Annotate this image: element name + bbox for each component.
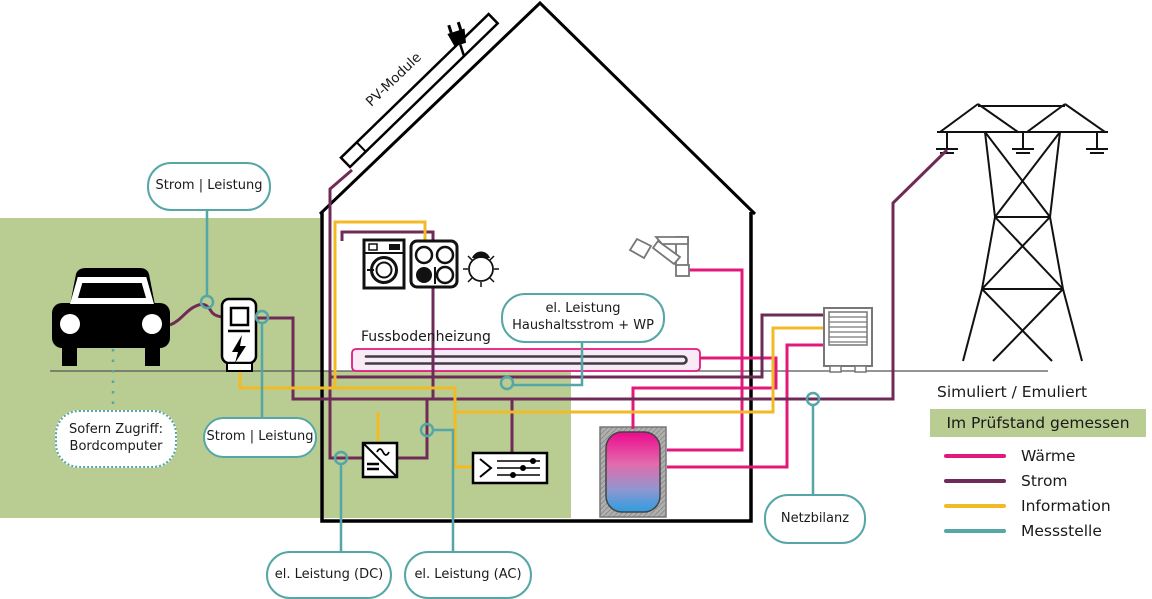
bubble-text-line2: Haushaltsstrom + WP xyxy=(512,318,654,335)
legend-row-messstelle: Messstelle xyxy=(944,518,1111,543)
power-pylon-icon xyxy=(936,104,1108,361)
legend-measured-badge: Im Prüfstand gemessen xyxy=(930,409,1146,437)
inverter-icon xyxy=(363,443,397,477)
floor-heating xyxy=(352,349,700,371)
bubble-text-line2: Bordcomputer xyxy=(70,439,163,456)
bubble-text: el. Leistung (DC) xyxy=(275,567,383,584)
washing-machine-icon xyxy=(364,240,404,288)
bubble-el-leistung-ac: el. Leistung (AC) xyxy=(404,551,532,599)
legend-swatch-strom xyxy=(944,479,1006,483)
measurement-loop-household xyxy=(501,377,513,389)
bubble-netzbilanz: Netzbilanz xyxy=(764,494,866,544)
electric-car-icon xyxy=(52,268,170,366)
wire-power-charging-cable xyxy=(170,304,225,325)
floor-heating-label: Fussbodenheizung xyxy=(361,329,491,345)
legend-swatch-information xyxy=(944,504,1006,508)
bubble-el-leistung-dc: el. Leistung (DC) xyxy=(266,551,392,599)
bubble-text-line1: Sofern Zugriff: xyxy=(69,422,163,439)
pylon-insulators xyxy=(936,132,1108,153)
legend-row-strom: Strom xyxy=(944,468,1111,493)
legend-label-messstelle: Messstelle xyxy=(1021,522,1102,540)
wire-power-inverter-ac xyxy=(398,399,427,458)
pv-panel xyxy=(341,14,498,167)
stove-icon xyxy=(411,241,457,287)
legend-simulated-label: Simuliert / Emuliert xyxy=(937,383,1087,401)
wire-mess-ac xyxy=(433,430,453,551)
legend-label-information: Information xyxy=(1021,497,1111,515)
heat-pump-icon xyxy=(824,308,872,372)
charging-station-icon xyxy=(222,299,256,371)
energy-system-diagram: PV-Module Fussbodenheizung Strom | Leist… xyxy=(0,0,1152,599)
legend-row-information: Information xyxy=(944,493,1111,518)
bubble-text: Netzbilanz xyxy=(781,511,849,528)
bubble-strom-leistung-top: Strom | Leistung xyxy=(147,162,271,211)
bubble-haushaltsstrom: el. Leistung Haushaltsstrom + WP xyxy=(501,293,665,343)
bubble-text-line1: el. Leistung xyxy=(545,301,620,318)
energy-manager-icon xyxy=(473,453,547,483)
legend-swatch-messstelle xyxy=(944,529,1006,533)
legend-label-strom: Strom xyxy=(1021,472,1068,490)
legend-label-waerme: Wärme xyxy=(1021,447,1076,465)
legend: Wärme Strom Information Messstelle xyxy=(944,443,1111,543)
bubble-text: Strom | Leistung xyxy=(156,178,263,195)
bubble-text: el. Leistung (AC) xyxy=(414,567,521,584)
bubble-strom-leistung-wallbox: Strom | Leistung xyxy=(203,417,317,458)
faucet-icon xyxy=(630,237,689,276)
bubble-bordcomputer: Sofern Zugriff: Bordcomputer xyxy=(55,410,177,468)
bubble-text: Strom | Leistung xyxy=(207,429,314,446)
lamp-icon xyxy=(463,252,499,287)
storage-tank-icon xyxy=(600,427,666,517)
legend-row-waerme: Wärme xyxy=(944,443,1111,468)
legend-swatch-waerme xyxy=(944,454,1006,458)
